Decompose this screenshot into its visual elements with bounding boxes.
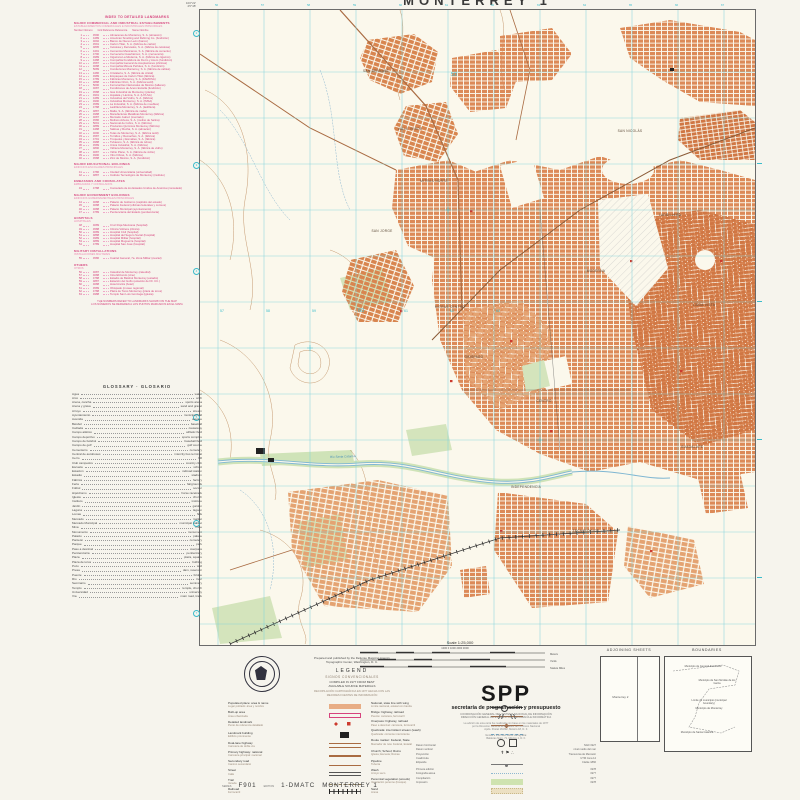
credit-row: Compilación1977 (416, 777, 596, 780)
compiled-line-2: AVAILABLE SOURCE MATERIALS (283, 685, 421, 689)
grid-easting-top: 62 (491, 3, 494, 7)
sheet-title: MONTERREY 1 (199, 0, 756, 8)
grid-edge-tick (757, 577, 762, 578)
scale-unit-miles: Statute Miles (550, 666, 566, 670)
road4-symbol (329, 743, 361, 748)
legend-row: Primary highway: nationalCarretera princ… (228, 751, 361, 758)
place-label: OBISPADO (465, 355, 484, 359)
index-column-headers: Number NúmeroGrid Reference ReferenciaNa… (74, 30, 200, 33)
adjoining-sheet-label: Monterrey 2 (603, 695, 638, 699)
place-label: TECNOLÓGICO (573, 528, 600, 533)
place-label: LADRILLERA (659, 213, 682, 217)
map-sheet-page: MONTERREY 1 100°22' 25°48' 5657585960616… (0, 0, 800, 800)
grid-easting-value: 60 (358, 308, 364, 314)
credit-row: ElipsoideClarke 1866 (416, 761, 596, 764)
spp-note-line-2: Balderas Núm. 71, México 1, D. F. (416, 737, 596, 740)
edition-label: EDITION (264, 785, 275, 788)
grid-easting-value: 57 (220, 309, 224, 313)
legend-row: Populated place: area & nameLugar poblad… (228, 702, 361, 709)
grid-easting-top: 56 (215, 3, 218, 7)
boundaries-diagram: Municipio de General EscobedoMunicipio d… (664, 656, 752, 752)
glossary-row: Víamain road, track (72, 594, 202, 598)
index-entry: 634988Templo San Luis Gonzaga (iglesia) (74, 293, 200, 296)
grid-easting-top: 59 (353, 3, 356, 7)
place-label: MODERNA (587, 269, 606, 273)
spp-sales-note: Ventas e informes sobre cartografía: Bal… (416, 734, 596, 740)
spp-logo: SPP (416, 684, 596, 704)
index-sections: MAJOR COMMERCIAL AND INDUSTRIAL ESTABLIS… (74, 21, 200, 296)
spp-org-line-2: DIRECCIÓN GENERAL DE ESTADÍSTICA, GEOGRA… (416, 716, 596, 719)
place-label: INDEPENDENCIA (511, 485, 542, 489)
place-label: LINDA VISTA (693, 303, 716, 307)
grid-easting-top: 57 (261, 3, 264, 7)
grid-easting-value: 62 (450, 309, 454, 313)
grid-easting-top: 60 (399, 3, 402, 7)
spp-name: secretaría de programación y presupuesto (416, 705, 596, 711)
urban-areas (288, 20, 755, 612)
production-credits-b: Primera edición1978Fotografía aérea1977C… (416, 768, 596, 784)
boundary-label: Municipio de Santa Catarina (675, 731, 719, 734)
grid-easting-top: 66 (675, 3, 678, 7)
adjoining-sheets-title: ADJOINING SHEETS (598, 648, 660, 652)
adjoining-sheets-diagram: Monterrey 2 (600, 656, 660, 742)
legend-row: StreetCalle (228, 769, 361, 776)
place-label: MITRAS CENTRO (435, 305, 466, 309)
rail-symbol (329, 789, 361, 794)
grid-easting-top: 67 (721, 3, 724, 7)
legend-row: SandArena (371, 787, 523, 794)
credit-row: Datum verticalnivel medio del mar (416, 748, 596, 751)
index-entry: 404588Zinc de México, S. A. (fundición) (74, 157, 200, 160)
legend-row: Built-up areaÁrea urbanizada (228, 711, 361, 718)
boundary-label: Municipio de Monterrey (687, 707, 731, 710)
map-canvas: 50 57585960616263 Río Santa Catarina SAN… (200, 10, 755, 645)
publisher-block: Prepared and published by the Defense Ma… (283, 657, 421, 697)
legend-subtitle: SIGNOS CONVENCIONALES (283, 675, 421, 679)
compiled-note-es: RECOPILACIÓN CARTOGRÁFICA EN 1977 HECHA … (283, 690, 421, 697)
legend-row: Landmark buildingEdificio prominente (228, 731, 361, 739)
glossary-panel: GLOSSARY · GLOSARIO AguawaterArcoarchAre… (72, 384, 202, 599)
landmark-index-panel: INDEX TO DETAILED LANDMARKS MAJOR COMMER… (74, 15, 200, 307)
scale-bar-numbers: 1000 0 1000 2000 3000 (441, 646, 469, 650)
place-label: CENTRO (536, 399, 551, 403)
credit-row: Primera edición1978 (416, 768, 596, 771)
boundary-label: Municipio de San Nicolás de los Garza (695, 679, 739, 685)
tint-symbol (329, 704, 361, 709)
place-label: MITRAS NORTE (420, 179, 448, 183)
corner-latitude: 25°48' (174, 5, 196, 8)
index-entry: 434788Consulado de los Estados Unidos de… (74, 187, 200, 190)
sand-symbol (491, 788, 523, 794)
compiled-es-line-2: MEJORES FUENTES DE INFORMACIÓN (283, 694, 421, 697)
street-symbol (329, 772, 361, 776)
credit-row: Datum horizontalNAD 1927 (416, 744, 596, 747)
grid-easting-value: 58 (266, 309, 270, 313)
index-entry: 554586Cuartel General, 7a. Zona Militar … (74, 257, 200, 260)
grid-easting-top: 64 (583, 3, 586, 7)
spp-block: SPP secretaría de programación y presupu… (416, 684, 596, 784)
index-section-heading-es: EDIFICIOS ESCOLARES PRINCIPALES (74, 166, 200, 169)
legend-column-left: Populated place: area & nameLugar poblad… (228, 702, 361, 794)
scale-unit-meters: Meters (550, 652, 559, 656)
map-frame: 50 57585960616263 Río Santa Catarina SAN… (199, 9, 756, 646)
place-label: SAN JORGE (371, 229, 392, 233)
legend-row: Dual-lane highwayCarretera de doble vía (228, 741, 361, 748)
place-label: GUADALUPE (681, 445, 703, 449)
footer-series-line: SERIES F901 EDITION 1-DMATC MONTERREY 1 (222, 782, 378, 789)
credit-row: CuadrículaUTM zona 14 (416, 757, 596, 760)
road3-symbol (329, 755, 361, 757)
spp-paragraph: La edición de esta carta fue realizada c… (416, 722, 596, 732)
place-label: SAN NICOLÁS (618, 129, 643, 133)
grid-easting-value: 63 (496, 309, 500, 313)
boundary-label: Municipio de General Escobedo (681, 665, 725, 668)
index-entry: 424887Instituto Tecnológico de Monterrey… (74, 174, 200, 177)
dots-symbol (329, 720, 361, 728)
outline-symbol (329, 713, 361, 718)
glossary-title: GLOSSARY · GLOSARIO (72, 384, 202, 389)
grid-edge-tick (757, 163, 762, 164)
legend-row: Detailed landmarkPunto de referencia det… (228, 720, 361, 728)
grid-easting-value: 61 (404, 309, 408, 313)
dma-seal (244, 656, 280, 692)
production-credits-a: Datum horizontalNAD 1927Datum verticalni… (416, 744, 596, 764)
grid-easting-top: 63 (537, 3, 540, 7)
credit-row: ProyecciónTransversa de Mercator (416, 753, 596, 756)
place-label: SAN BERNABÉ (363, 68, 389, 73)
corner-coordinates: 100°22' 25°48' (174, 2, 196, 9)
grid-northing-label: 50 (451, 72, 457, 78)
boundaries-title: BOUNDARIES (664, 648, 750, 652)
index-entry: 544789Hospital San José (hospital) (74, 243, 200, 246)
grid-easting-top: 65 (629, 3, 632, 7)
publisher-line-2: Topographic Center, Washington, D. C. (283, 661, 421, 665)
legend-row: Secondary roadCamino secundario (228, 760, 361, 767)
spp-para-line-3: Apdo. Postal 18-892, México 18, D. F. (416, 728, 596, 731)
scale-unit-yards: Yards (550, 659, 557, 663)
grid-easting-top: 61 (445, 3, 448, 7)
grid-edge-tick (757, 301, 762, 302)
index-section-heading-es: ESTABLECIMIENTOS COMERCIALES E INDUSTRIA… (74, 25, 200, 28)
index-entry: 474789Penitenciaría del Estado (penitenc… (74, 211, 200, 214)
credit-row: Fotografía aérea1977 (416, 772, 596, 775)
series-label: SERIES (222, 785, 232, 788)
legend-title: LEGEND (283, 668, 421, 674)
grid-edge-tick (757, 439, 762, 440)
index-footnote: THE NUMBERS REFER TO LANDMARKS SHOWN ON … (74, 300, 200, 307)
sheet-name: MONTERREY 1 (322, 782, 378, 789)
boundary-label: Límite de municipio (municipal boundary) (687, 699, 731, 705)
margin-reference: 7 (193, 610, 200, 617)
road2-symbol (329, 765, 361, 766)
grid-easting-top: 58 (307, 3, 310, 7)
edition-value: 1-DMATC (281, 782, 315, 789)
place-label: VALLE VERDE (398, 127, 423, 131)
credit-row: Impresión1978 (416, 781, 596, 784)
index-title: INDEX TO DETAILED LANDMARKS (74, 15, 200, 19)
grid-easting-value: 59 (312, 309, 316, 313)
building-symbol (329, 731, 361, 739)
glossary-rows: AguawaterArcoarchArena, canchasports are… (72, 392, 202, 599)
index-footnote-es: LOS NÚMEROS SE REFIEREN A LOS PUNTOS MAR… (74, 303, 200, 306)
compiled-note-en: COMPILED IN 1977 FROM BEST AVAILABLE SOU… (283, 681, 421, 689)
adjoining-divider (637, 657, 638, 741)
series-value: F901 (239, 782, 257, 789)
spp-org: COORDINACIÓN GENERAL DEL SISTEMA NACIONA… (416, 713, 596, 720)
